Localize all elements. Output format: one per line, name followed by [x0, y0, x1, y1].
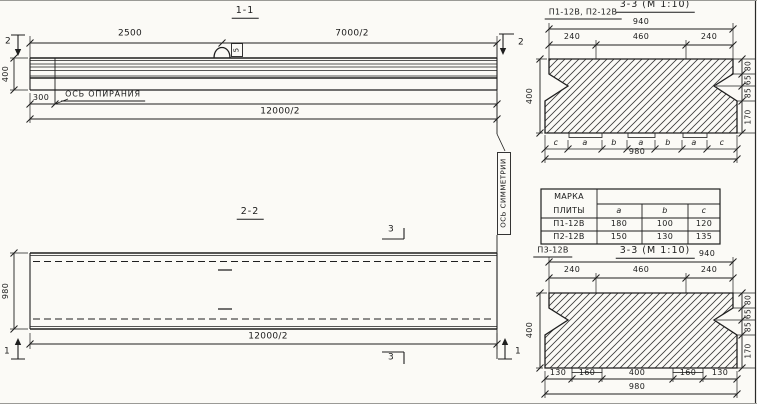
dim-460-b: 460 [633, 266, 649, 274]
table-row2-b: 130 [657, 233, 673, 241]
dim-400-bot: 400 [629, 369, 645, 377]
table-row2-c: 135 [696, 233, 712, 241]
dim-80: 80 [744, 61, 752, 71]
dim-400-s33t: 400 [526, 88, 534, 104]
dim-400-s33b: 400 [526, 322, 534, 338]
dim-65: 65 [744, 75, 752, 85]
dim-85-b: 85 [744, 322, 752, 332]
dim-170: 170 [744, 109, 752, 124]
dim-980-s33b: 980 [629, 383, 645, 391]
table-row1-mark: П1-12В [553, 220, 584, 228]
table-head-plity: ПЛИТЫ [553, 207, 584, 215]
cut-1-label-left: 1 [4, 348, 10, 357]
table-row1-a: 180 [611, 220, 627, 228]
drawing-linework [0, 1, 757, 404]
cut-2-label-left: 2 [5, 38, 11, 47]
letter-b1: b [611, 139, 616, 147]
dim-240-r: 240 [701, 33, 717, 41]
dim-7000-2: 7000/2 [335, 30, 368, 39]
dim-940-top: 940 [633, 18, 649, 26]
table-col-c: c [702, 207, 707, 215]
dim-980-s22: 980 [2, 283, 10, 299]
dim-240-r-b: 240 [701, 266, 717, 274]
plate-marks-p1-p2: П1-12В, П2-12В [545, 9, 622, 20]
dim-240-l-b: 240 [564, 266, 580, 274]
letter-a2: a [638, 139, 643, 147]
cut-3-label-bottom: 3 [388, 354, 394, 363]
plate-mark-p3: П3-12В [533, 247, 572, 258]
dim-130-2: 130 [712, 369, 728, 377]
dim-80-b: 80 [744, 295, 752, 305]
dim-65-b: 65 [744, 309, 752, 319]
letter-b2: b [665, 139, 670, 147]
table-head-marka: МАРКА [554, 193, 584, 201]
section-2-2-title: 2-2 [237, 207, 264, 220]
loop-tag: 5 [234, 48, 241, 53]
cut-2-label-right: 2 [518, 39, 524, 48]
table-row1-b: 100 [657, 220, 673, 228]
dim-130-1: 130 [550, 369, 566, 377]
table-col-b: b [662, 207, 667, 215]
section-2-2-lines [10, 228, 512, 364]
dim-170-b: 170 [744, 343, 752, 358]
letter-c1: c [554, 139, 559, 147]
dim-940-bottom: 940 [699, 250, 715, 258]
section-1-1-title: 1-1 [232, 6, 259, 19]
dim-400-s11: 400 [2, 66, 10, 82]
support-axis-label: ОСЬ ОПИРАНИЯ [61, 91, 145, 102]
dim-980-s33t: 980 [629, 148, 645, 156]
section-3-3-top-title: 3-3 (М 1:10) [616, 0, 695, 12]
dim-2500: 2500 [118, 30, 142, 39]
table-col-a: a [616, 207, 621, 215]
section-3-3-bottom-title: 3-3 (М 1:10) [616, 246, 695, 259]
letter-c2: c [720, 139, 725, 147]
letter-a3: a [691, 139, 696, 147]
dim-300: 300 [33, 94, 49, 102]
cut-3-label-top: 3 [388, 226, 394, 235]
cut-1-label-right: 1 [515, 348, 521, 357]
dim-460: 460 [633, 33, 649, 41]
dim-85: 85 [744, 88, 752, 98]
table-row2-mark: П2-12В [553, 233, 584, 241]
symmetry-axis-label: ОСЬ СИММЕТРИИ [501, 158, 508, 228]
dim-160-1: 160 [579, 369, 595, 377]
table-row1-c: 120 [696, 220, 712, 228]
letter-a1: a [582, 139, 587, 147]
dim-160-2: 160 [680, 369, 696, 377]
dim-12000-2-s11: 12000/2 [260, 108, 300, 117]
dim-240-l: 240 [564, 33, 580, 41]
dim-12000-2-s22: 12000/2 [248, 333, 288, 342]
table-row2-a: 150 [611, 233, 627, 241]
drawing-canvas: 1-1 2500 7000/2 2 2 400 300 ОСЬ ОПИРАНИЯ… [0, 0, 757, 404]
